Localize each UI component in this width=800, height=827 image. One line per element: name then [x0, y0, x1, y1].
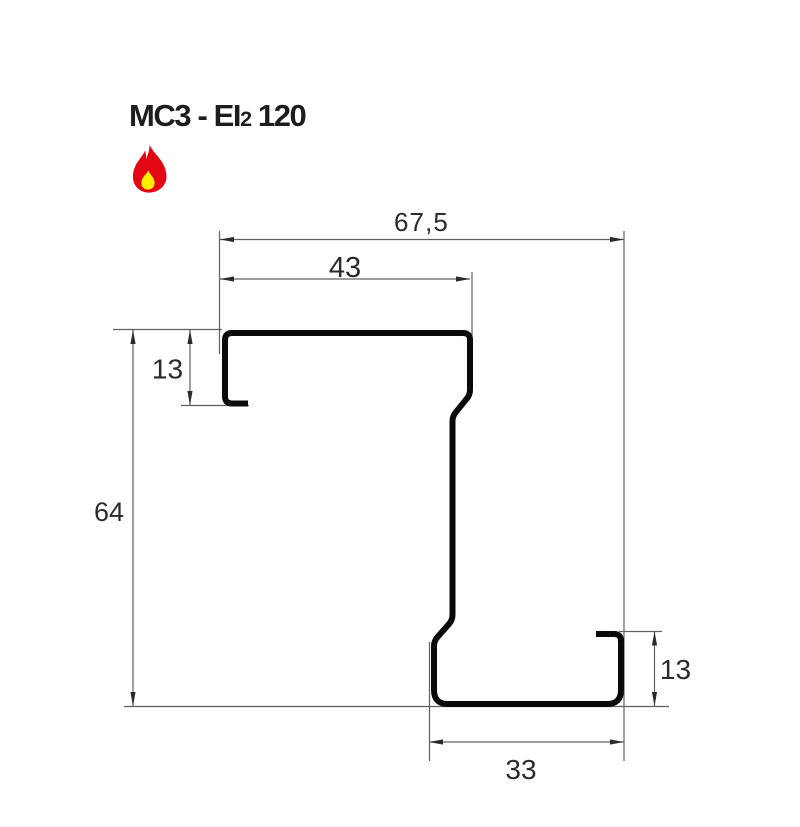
svg-text:33: 33	[505, 754, 536, 785]
svg-text:43: 43	[329, 252, 361, 284]
svg-text:13: 13	[152, 354, 183, 385]
svg-text:64: 64	[94, 497, 124, 527]
svg-text:67,5: 67,5	[394, 207, 449, 237]
svg-text:13: 13	[660, 654, 691, 685]
svg-text:MC3 - EI2 120: MC3 - EI2 120	[129, 98, 306, 133]
